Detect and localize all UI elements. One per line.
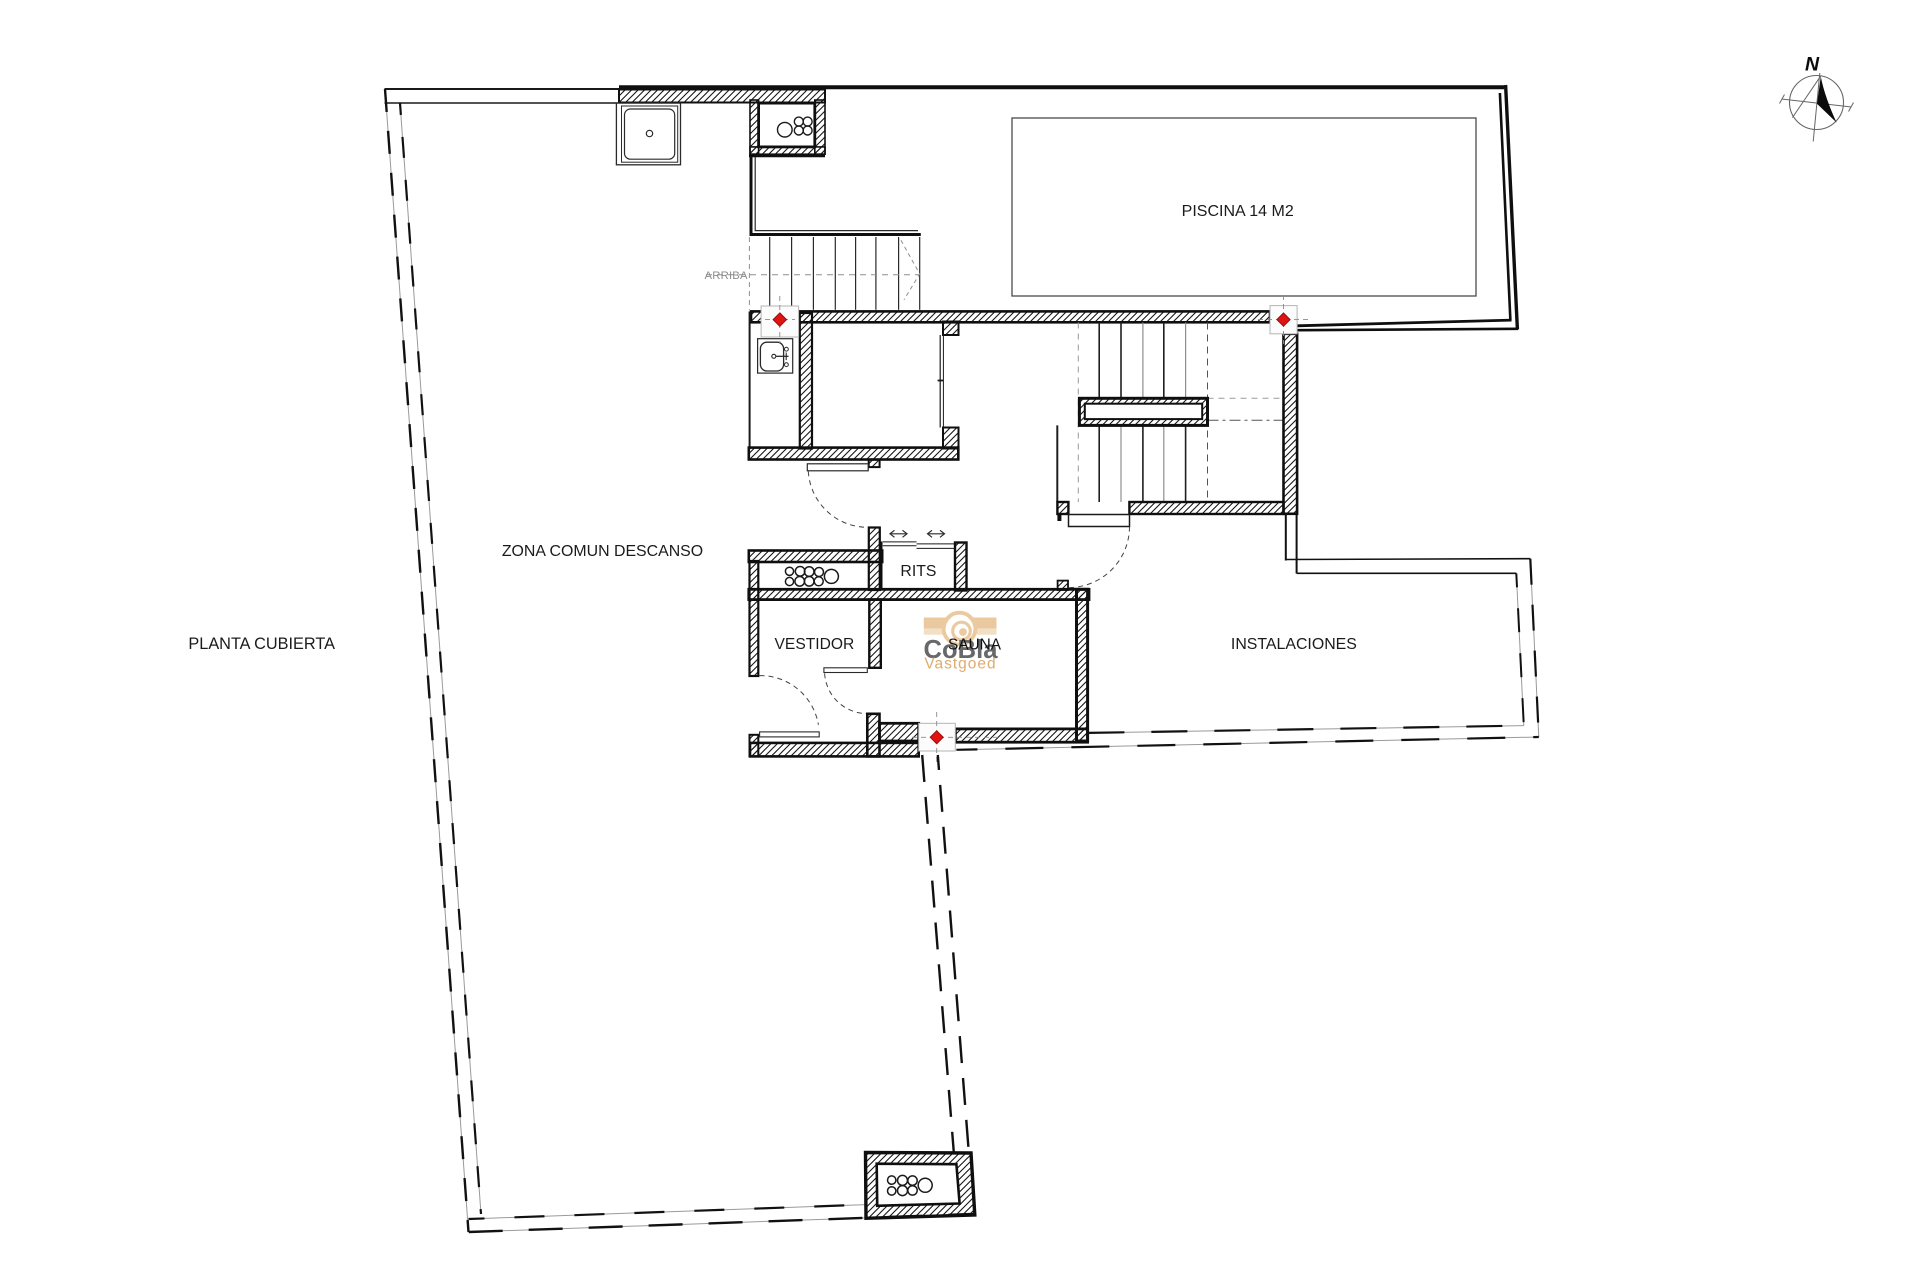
svg-text:Vastgoed: Vastgoed [924, 656, 996, 673]
svg-text:N: N [1805, 54, 1820, 76]
svg-text:PLANTA CUBIERTA: PLANTA CUBIERTA [188, 635, 335, 653]
svg-text:ARRIBA: ARRIBA [705, 270, 749, 282]
svg-text:SAUNA: SAUNA [948, 636, 1002, 653]
svg-text:INSTALACIONES: INSTALACIONES [1231, 636, 1357, 653]
svg-text:VESTIDOR: VESTIDOR [775, 636, 855, 653]
svg-text:PISCINA 14 M2: PISCINA 14 M2 [1182, 203, 1294, 220]
svg-text:RITS: RITS [900, 563, 936, 580]
svg-text:ZONA COMUN DESCANSO: ZONA COMUN DESCANSO [502, 543, 703, 560]
